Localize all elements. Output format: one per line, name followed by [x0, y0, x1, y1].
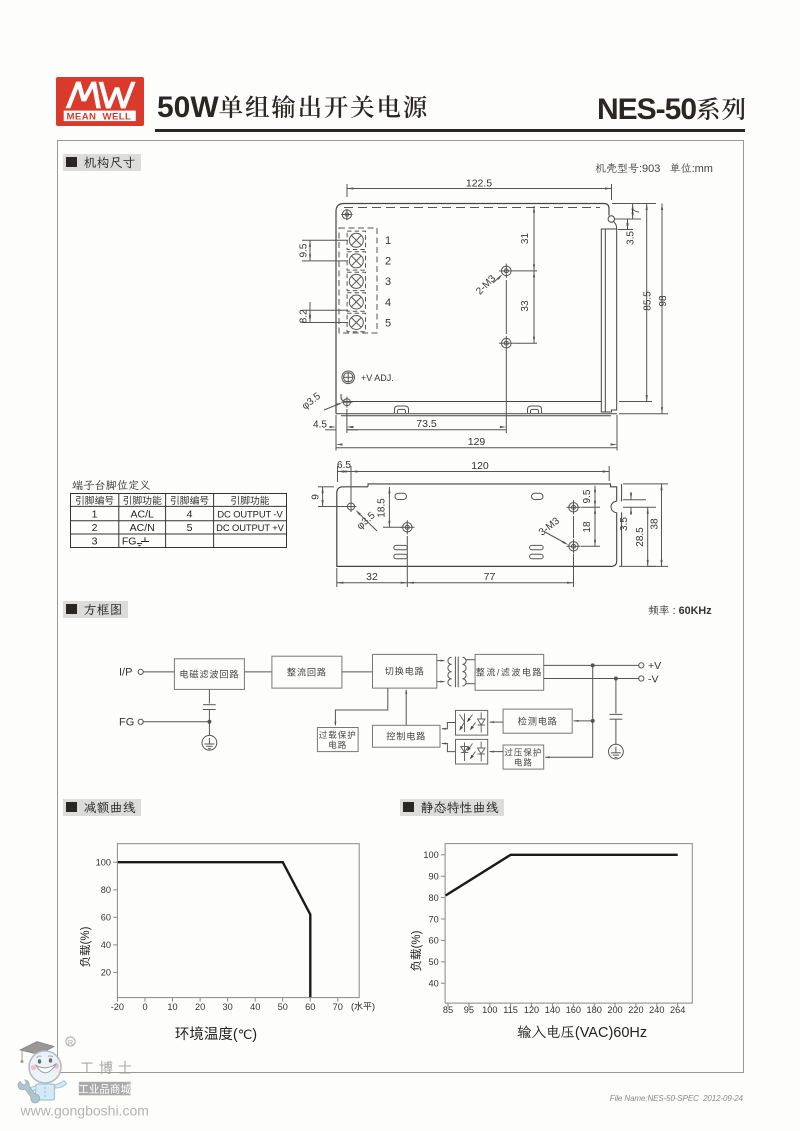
svg-text:MEAN: MEAN [67, 111, 97, 122]
svg-text:-V: -V [648, 673, 659, 685]
svg-text:32: 32 [366, 571, 378, 583]
svg-text:9.5: 9.5 [582, 489, 593, 503]
svg-text:引脚编号: 引脚编号 [75, 494, 114, 507]
svg-text:FG: FG [119, 717, 134, 729]
svg-text:98: 98 [658, 295, 669, 307]
svg-text:(水平): (水平) [351, 1001, 375, 1012]
svg-text:33: 33 [520, 300, 531, 312]
svg-text:28.5: 28.5 [635, 527, 646, 547]
svg-text:DC OUTPUT -V: DC OUTPUT -V [217, 509, 283, 520]
svg-text:+V: +V [648, 660, 661, 672]
svg-text:整流回路: 整流回路 [287, 666, 327, 677]
svg-text:过载保护: 过载保护 [319, 730, 357, 740]
svg-text:129: 129 [468, 436, 486, 448]
svg-text:140: 140 [545, 1005, 560, 1015]
svg-text:2: 2 [92, 522, 98, 534]
svg-text:4: 4 [187, 509, 193, 521]
svg-text:95: 95 [464, 1005, 474, 1015]
svg-text:引脚功能: 引脚功能 [230, 494, 269, 507]
svg-text:电路: 电路 [328, 740, 347, 750]
svg-text:38: 38 [650, 518, 661, 530]
svg-text:40: 40 [250, 1002, 260, 1012]
svg-text:工博士: 工博士 [80, 1060, 137, 1076]
svg-text:工业品商城: 工业品商城 [78, 1082, 131, 1095]
svg-text:负载(%): 负载(%) [80, 926, 92, 967]
svg-text:85.5: 85.5 [643, 291, 654, 311]
svg-text:90: 90 [428, 872, 438, 882]
svg-text:φ3.5: φ3.5 [300, 391, 323, 412]
svg-text:引脚功能: 引脚功能 [123, 494, 162, 507]
svg-text:R: R [68, 1038, 74, 1047]
svg-text:20: 20 [101, 968, 111, 978]
svg-text:220: 220 [628, 1005, 643, 1015]
svg-text:AC/L: AC/L [131, 509, 155, 521]
svg-text:40: 40 [101, 940, 111, 950]
svg-text:9: 9 [311, 494, 322, 500]
svg-text:FG: FG [122, 536, 137, 548]
svg-text:122.5: 122.5 [466, 177, 492, 189]
svg-text:环境温度(℃): 环境温度(℃) [175, 1025, 257, 1043]
svg-text:3: 3 [385, 276, 391, 288]
svg-text:检测电路: 检测电路 [518, 715, 558, 726]
svg-text:100: 100 [482, 1005, 497, 1015]
svg-text:60: 60 [101, 913, 111, 923]
svg-text:264: 264 [670, 1005, 685, 1015]
svg-text:5: 5 [187, 522, 193, 534]
svg-text:5: 5 [385, 317, 391, 329]
svg-text:0: 0 [142, 1002, 147, 1012]
svg-text:18.5: 18.5 [377, 498, 388, 518]
svg-text:电磁滤波回路: 电磁滤波回路 [179, 668, 239, 679]
svg-text:电路: 电路 [514, 758, 533, 768]
svg-text:切换电路: 切换电路 [385, 666, 425, 677]
svg-text:80: 80 [101, 885, 111, 895]
svg-text:73.5: 73.5 [416, 418, 437, 430]
svg-text:2-M3: 2-M3 [474, 273, 498, 297]
svg-text:40: 40 [428, 979, 438, 989]
svg-text:100: 100 [96, 858, 111, 868]
svg-text:70: 70 [428, 914, 438, 924]
svg-text:9.5: 9.5 [299, 243, 310, 257]
svg-text:4: 4 [385, 297, 391, 309]
svg-text:输入电压(VAC)60Hz: 输入电压(VAC)60Hz [517, 1023, 647, 1042]
svg-text:4.5: 4.5 [313, 419, 327, 430]
svg-text:3: 3 [92, 536, 98, 548]
svg-text:负载(%): 负载(%) [409, 930, 423, 971]
svg-text:1: 1 [385, 235, 391, 247]
svg-text:60: 60 [428, 936, 438, 946]
svg-text:AC/N: AC/N [130, 522, 155, 534]
svg-text:100: 100 [423, 850, 438, 860]
svg-text:DC OUTPUT +V: DC OUTPUT +V [216, 522, 284, 533]
svg-text:60: 60 [305, 1002, 315, 1012]
svg-text:2: 2 [385, 256, 391, 268]
svg-text:240: 240 [649, 1005, 664, 1015]
svg-text:200: 200 [607, 1005, 622, 1015]
svg-text:70: 70 [333, 1002, 343, 1012]
svg-text:180: 180 [587, 1005, 602, 1015]
svg-text:3.5: 3.5 [619, 517, 630, 531]
svg-text:WELL: WELL [103, 111, 132, 122]
svg-text:3.5: 3.5 [626, 231, 637, 245]
svg-text:18: 18 [582, 521, 593, 533]
svg-text:1: 1 [92, 509, 98, 521]
svg-text:7: 7 [631, 208, 642, 214]
svg-text:80: 80 [428, 893, 438, 903]
svg-text:+V ADJ.: +V ADJ. [361, 373, 394, 383]
svg-text:I/P: I/P [119, 667, 132, 679]
svg-text:过压保护: 过压保护 [504, 748, 542, 758]
svg-text:115: 115 [503, 1005, 518, 1015]
svg-text:120: 120 [471, 460, 489, 472]
svg-text:85: 85 [443, 1005, 453, 1015]
svg-text:160: 160 [566, 1005, 581, 1015]
svg-text:120: 120 [524, 1005, 539, 1015]
svg-text:31: 31 [520, 233, 531, 245]
svg-text:-20: -20 [111, 1002, 124, 1012]
svg-text:50: 50 [428, 957, 438, 967]
svg-text:6.5: 6.5 [337, 460, 351, 471]
svg-text:引脚编号: 引脚编号 [170, 494, 209, 507]
svg-text:77: 77 [484, 571, 496, 583]
svg-text:30: 30 [222, 1002, 232, 1012]
svg-text:整流/滤波电路: 整流/滤波电路 [476, 667, 543, 678]
svg-text:10: 10 [167, 1002, 177, 1012]
svg-text:20: 20 [195, 1002, 205, 1012]
svg-text:www.gongboshi.com: www.gongboshi.com [20, 1103, 149, 1119]
svg-text:控制电路: 控制电路 [386, 731, 426, 742]
svg-text:50: 50 [278, 1002, 288, 1012]
svg-text:8.2: 8.2 [299, 309, 310, 323]
